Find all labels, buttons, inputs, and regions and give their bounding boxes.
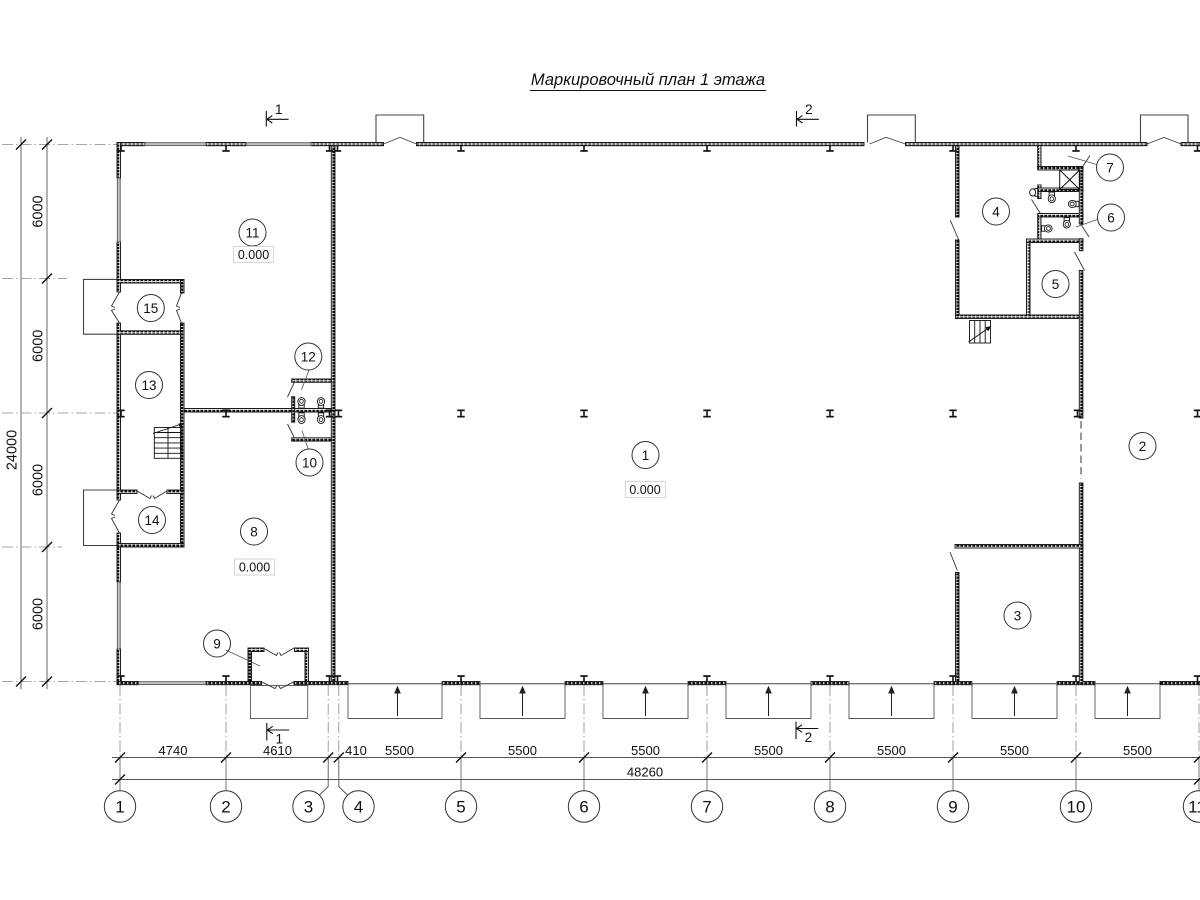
svg-text:410: 410 bbox=[345, 743, 367, 758]
svg-text:24000: 24000 bbox=[5, 430, 21, 470]
svg-text:6000: 6000 bbox=[31, 330, 47, 362]
svg-text:0.000: 0.000 bbox=[629, 483, 660, 497]
svg-text:3: 3 bbox=[304, 798, 313, 817]
svg-text:2: 2 bbox=[805, 102, 813, 117]
svg-text:8: 8 bbox=[250, 524, 258, 539]
svg-text:10: 10 bbox=[1067, 798, 1086, 817]
svg-text:5500: 5500 bbox=[508, 743, 537, 758]
svg-text:13: 13 bbox=[141, 378, 156, 393]
svg-text:1: 1 bbox=[275, 102, 283, 117]
svg-text:6: 6 bbox=[579, 798, 588, 817]
svg-text:Маркировочный план 1 этажа: Маркировочный план 1 этажа bbox=[531, 71, 765, 89]
svg-text:1: 1 bbox=[642, 448, 650, 463]
svg-text:4: 4 bbox=[992, 204, 1000, 219]
svg-text:0.000: 0.000 bbox=[238, 248, 269, 262]
svg-text:14: 14 bbox=[144, 513, 160, 528]
svg-text:5500: 5500 bbox=[631, 743, 660, 758]
svg-text:7: 7 bbox=[1106, 160, 1114, 175]
svg-text:10: 10 bbox=[302, 455, 317, 470]
svg-text:11: 11 bbox=[1188, 798, 1200, 817]
svg-text:4: 4 bbox=[354, 798, 363, 817]
svg-text:5500: 5500 bbox=[754, 743, 783, 758]
svg-text:1: 1 bbox=[115, 798, 124, 817]
svg-text:5500: 5500 bbox=[1000, 743, 1029, 758]
svg-text:8: 8 bbox=[825, 798, 834, 817]
svg-text:5500: 5500 bbox=[385, 743, 414, 758]
svg-text:12: 12 bbox=[301, 349, 316, 364]
svg-text:5: 5 bbox=[456, 798, 465, 817]
svg-text:6: 6 bbox=[1107, 210, 1115, 225]
svg-text:1: 1 bbox=[275, 732, 283, 747]
svg-text:15: 15 bbox=[143, 301, 158, 316]
svg-text:48260: 48260 bbox=[627, 765, 663, 780]
svg-text:6000: 6000 bbox=[31, 464, 47, 496]
svg-text:5: 5 bbox=[1052, 277, 1060, 292]
svg-text:11: 11 bbox=[245, 225, 259, 240]
svg-text:5500: 5500 bbox=[1123, 743, 1152, 758]
svg-text:0.000: 0.000 bbox=[239, 560, 270, 574]
svg-text:2: 2 bbox=[805, 730, 813, 745]
svg-text:7: 7 bbox=[702, 798, 711, 817]
svg-text:4740: 4740 bbox=[159, 743, 188, 758]
svg-text:6000: 6000 bbox=[31, 598, 47, 630]
svg-text:5500: 5500 bbox=[877, 743, 906, 758]
svg-text:9: 9 bbox=[948, 798, 957, 817]
svg-text:9: 9 bbox=[213, 636, 221, 651]
svg-text:6000: 6000 bbox=[31, 195, 47, 227]
svg-text:2: 2 bbox=[1139, 439, 1147, 454]
svg-text:2: 2 bbox=[221, 798, 230, 817]
svg-text:3: 3 bbox=[1014, 608, 1022, 623]
